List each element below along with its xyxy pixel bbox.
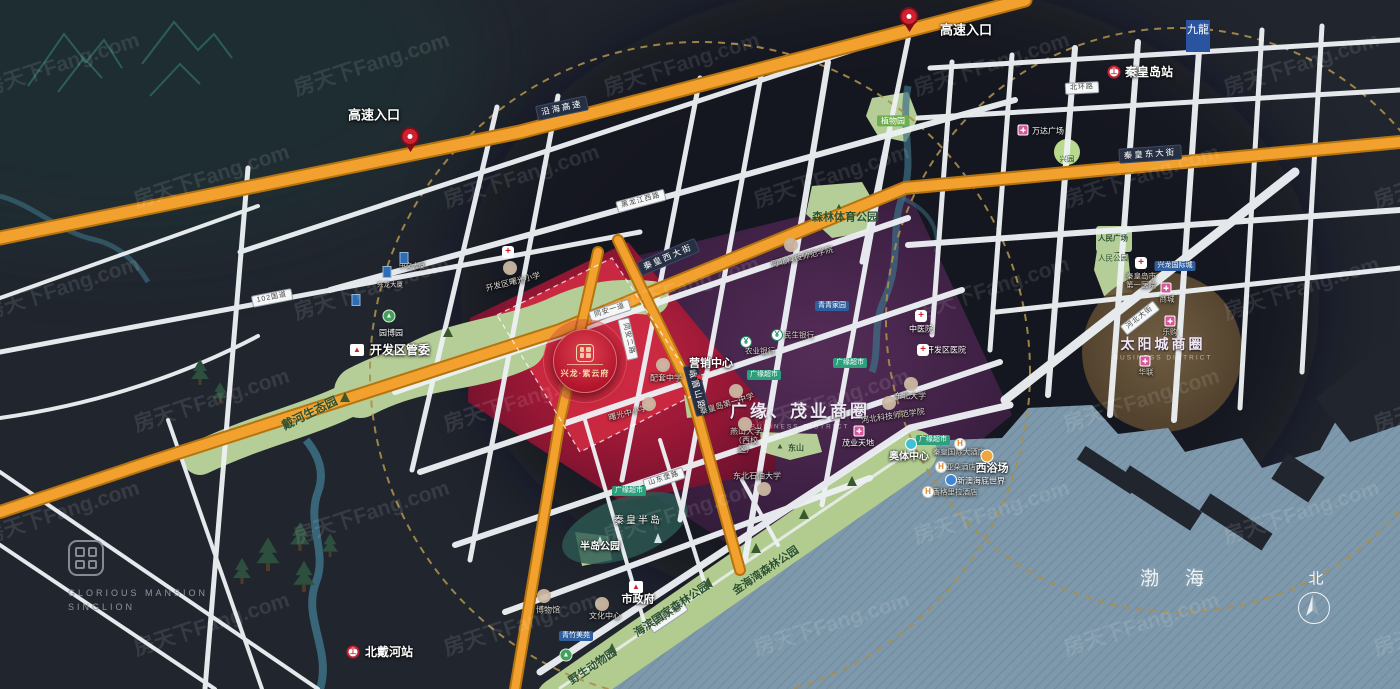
label-school-peitao: 配套中学: [650, 373, 682, 382]
label-culture-center: 文化中心: [589, 611, 621, 620]
watermark: 房天下Fang.com: [599, 24, 763, 103]
watermark: 房天下Fang.com: [599, 472, 763, 551]
label-park-bandao: 半岛公园: [580, 541, 620, 553]
property-marker: 兴龙·紫云府: [543, 319, 627, 403]
watermark: 房天下Fang.com: [1369, 584, 1400, 663]
mall-icon-shangcheng: [1161, 283, 1172, 294]
label-mall-hualian: 华联: [1139, 369, 1154, 378]
watermark: 房天下Fang.com: [909, 248, 1073, 327]
label-marketing-center: 营销中心: [689, 358, 733, 371]
label-mall-wanda: 万达广场: [1032, 126, 1064, 135]
watermark: 房天下Fang.com: [1219, 248, 1383, 327]
watermark: 房天下Fang.com: [439, 136, 603, 215]
watermark: 房天下Fang.com: [289, 24, 453, 103]
bank-icon-nongye: ¥: [740, 336, 752, 348]
label-district-suncity-sub: BUSINESS DISTRICT: [1114, 354, 1213, 361]
watermark: 房天下Fang.com: [1219, 472, 1383, 551]
hotel-icon-qinhuang: H: [954, 438, 966, 450]
property-seal-icon: [576, 344, 594, 362]
hospital-icon-west: +: [502, 246, 514, 258]
brand-line1: GLORIOUS MANSION: [68, 588, 208, 598]
watermark: 房天下Fang.com: [749, 136, 913, 215]
pin-expressway-2: [900, 7, 919, 32]
gov-icon-city-hall: ▲: [629, 581, 643, 593]
watermark: 房天下Fang.com: [0, 24, 143, 103]
watermark: 房天下Fang.com: [1219, 24, 1383, 103]
watermark: 房天下Fang.com: [749, 584, 913, 663]
label-museum: 博物馆: [536, 605, 560, 614]
hospital-icon-kfq: +: [917, 344, 929, 356]
label-residence-xinglong-intl: 兴龙国际城: [1155, 261, 1196, 271]
label-park-yuanbo: 园博园: [379, 328, 403, 337]
label-road-beihuan: 北环路: [1065, 81, 1100, 95]
sea-name: 渤海: [1114, 564, 1230, 591]
school-dot-kfq-primary: [503, 261, 517, 275]
label-mall-legou: 乐购: [1163, 329, 1178, 338]
watermark: 房天下Fang.com: [0, 472, 143, 551]
hospital-icon-no1: +: [1135, 257, 1147, 269]
label-west-beach: 西浴场: [976, 463, 1009, 476]
label-tower-xinglong: 兴龙大厦: [377, 281, 403, 288]
label-mall-shangcheng: 商城: [1160, 296, 1175, 305]
label-univ-shiyou: 东北石油大学: [733, 471, 781, 480]
pin-expressway-1: [401, 127, 420, 152]
label-hw-yanhai: 沿海高速: [535, 95, 589, 120]
label-expressway-entrance-2: 高速入口: [940, 24, 992, 39]
label-station-qinhuangdao: 秦皇岛站: [1125, 66, 1173, 80]
blue-badge-logo: 九龍: [1186, 20, 1210, 52]
univ-dot-yanshan: [738, 417, 752, 431]
watermark: 房天下Fang.com: [1369, 136, 1400, 215]
watermark: 房天下Fang.com: [0, 248, 143, 327]
north-label: 北: [1308, 568, 1323, 589]
property-name: 兴龙·紫云府: [561, 368, 610, 379]
univ-dot-shiyou: [757, 482, 771, 496]
building-icon-zhongjiao: [400, 252, 409, 264]
hospital-icon-zhongyi: +: [915, 310, 927, 322]
label-hospital-kfq: 开发区医院: [926, 345, 966, 354]
park-icon-yesheng: ▲: [560, 649, 573, 662]
bank-icon-minsheng: ¥: [771, 329, 783, 341]
label-district-guangyuan-sub: BUSINESS DISTRICT: [751, 423, 850, 430]
label-univ-dongbei: 东北大学: [894, 391, 926, 400]
train-icon-beidaihe: 工: [347, 646, 360, 659]
label-univ-yanshan: 燕山大学（西校区）: [729, 427, 763, 455]
star-icon-marketing: ★: [694, 371, 704, 384]
school-dot-shuguang: [642, 397, 656, 411]
label-district-guangyuan: 广缘、茂业商圈: [730, 402, 870, 422]
label-park-renmin-square: 人民广场: [1098, 235, 1128, 244]
label-park-dongshan: 东山: [788, 443, 804, 452]
univ-dot-dongbei: [904, 377, 918, 391]
label-district-suncity: 太阳城商圈: [1121, 336, 1206, 352]
mall-icon-wanda: [1018, 125, 1029, 136]
label-park-zhiwu: 植物园: [877, 115, 909, 126]
property-marker-core: 兴龙·紫云府: [553, 329, 617, 393]
brand-logo: GLORIOUS MANSION SINGLION: [68, 540, 208, 612]
west-beach-icon: [981, 450, 994, 463]
label-univ-hbkj-2: 河北科技师范学院: [770, 245, 834, 269]
watermark: 房天下Fang.com: [1059, 584, 1223, 663]
brand-seal-icon: [68, 540, 104, 576]
univ-dot-hbkj-1: [882, 396, 896, 410]
culture-dot-bowuguan: [537, 589, 551, 603]
label-qinhuang-peninsula: 秦皇半岛: [614, 515, 662, 527]
label-park-xingyuan: 兴园: [1060, 156, 1075, 165]
label-gov-city-hall: 市政府: [622, 594, 655, 607]
univ-dot-hbkj-2: [784, 238, 798, 252]
label-olympic-center: 奥体中心: [889, 451, 929, 463]
aquarium-icon: [945, 474, 957, 486]
label-park-daihe: 戴河生态园: [280, 395, 340, 434]
mall-icon-legou: [1165, 316, 1176, 327]
label-hotel-yaduo: 亚朵酒店: [946, 464, 976, 473]
watermark: 房天下Fang.com: [289, 472, 453, 551]
school-dot-peitao: [656, 358, 670, 372]
property-divider: [567, 364, 603, 365]
label-station-beidaihe: 北戴河站: [365, 646, 413, 660]
olympic-center-icon: [905, 438, 917, 450]
watermark: 房天下Fang.com: [129, 360, 293, 439]
label-park-senlin: 森林体育公园: [812, 212, 878, 225]
label-xinao-aquarium: 新澳海底世界: [957, 476, 1005, 485]
watermark: 房天下Fang.com: [599, 248, 763, 327]
label-gov-kaifaqu: 开发区管委: [370, 344, 430, 358]
label-residence-qingqing: 青青家园: [815, 301, 849, 311]
label-road-shandongbao: 山东堡路: [642, 467, 686, 491]
watermark: 房天下Fang.com: [129, 136, 293, 215]
park-icon-yuanbo: ▲: [383, 310, 396, 323]
train-icon-qinhuangdao: 工: [1108, 66, 1121, 79]
location-map: 高速入口高速入口沿海高速秦皇西大街秦皇东大街峨眉山路102国道黑龙江西路同安一道…: [0, 0, 1400, 689]
watermark: 房天下Fang.com: [1369, 360, 1400, 439]
building-icon-xinglong: [383, 266, 392, 278]
label-univ-hbkj-1: 河北科技师范学院: [861, 407, 926, 425]
label-park-renmin-park: 人民公园: [1098, 255, 1128, 264]
watermark: 房天下Fang.com: [289, 248, 453, 327]
label-park-jinhaiwan: 金海湾森林公园: [731, 544, 802, 598]
hotel-icon-shangrila: H: [922, 486, 934, 498]
label-hw-qinhuang-east: 秦皇东大街: [1118, 144, 1181, 163]
label-super-guangyuan-2: 广缘超市: [747, 370, 781, 380]
label-road-102: 102国道: [251, 288, 293, 308]
label-mall-maoye: 茂业天地: [842, 438, 874, 447]
label-hw-qinhuang-west: 秦皇西大街: [636, 238, 699, 276]
compass-icon: [1298, 592, 1330, 624]
tree-glyph-senlin: ▲: [835, 202, 843, 211]
label-road-hebei: 河北大街: [1120, 300, 1161, 335]
school-dot-no1-middle: [729, 384, 743, 398]
tree-glyph-dongshan: ▲: [776, 442, 784, 451]
brand-line2: SINGLION: [68, 602, 208, 612]
building-icon-extra: [352, 294, 361, 306]
label-bank-minsheng: 民生银行: [784, 332, 814, 341]
label-hotel-shangrila: 香格里拉酒店: [933, 489, 978, 498]
label-park-yesheng: 野生动物园: [567, 646, 620, 687]
culture-dot-wenhua: [595, 597, 609, 611]
label-road-heilongjiang-west: 黑龙江西路: [615, 189, 666, 214]
label-hospital-zhongyi: 中医院: [909, 324, 933, 333]
mall-icon-maoye: [854, 426, 865, 437]
label-super-guangyuan-4: 广缘超市: [612, 486, 646, 496]
label-expressway-entrance-1: 高速入口: [348, 109, 400, 124]
label-bank-nongye: 农业银行: [745, 348, 775, 357]
label-residence-qingzhu: 青竹美苑: [559, 631, 593, 641]
label-park-haibin: 海滨国家森林公园: [632, 580, 712, 640]
label-hospital-no1: 秦皇岛市第一医院: [1124, 272, 1158, 289]
mall-icon-hualian: [1140, 356, 1151, 367]
gov-icon-kaifaqu: ▲: [350, 344, 364, 356]
watermark: 房天下Fang.com: [439, 584, 603, 663]
label-super-guangyuan-1: 广缘超市: [833, 358, 867, 368]
label-super-guangyuan-3: 广缘超市: [916, 435, 950, 445]
hotel-icon-yaduo: H: [935, 461, 947, 473]
